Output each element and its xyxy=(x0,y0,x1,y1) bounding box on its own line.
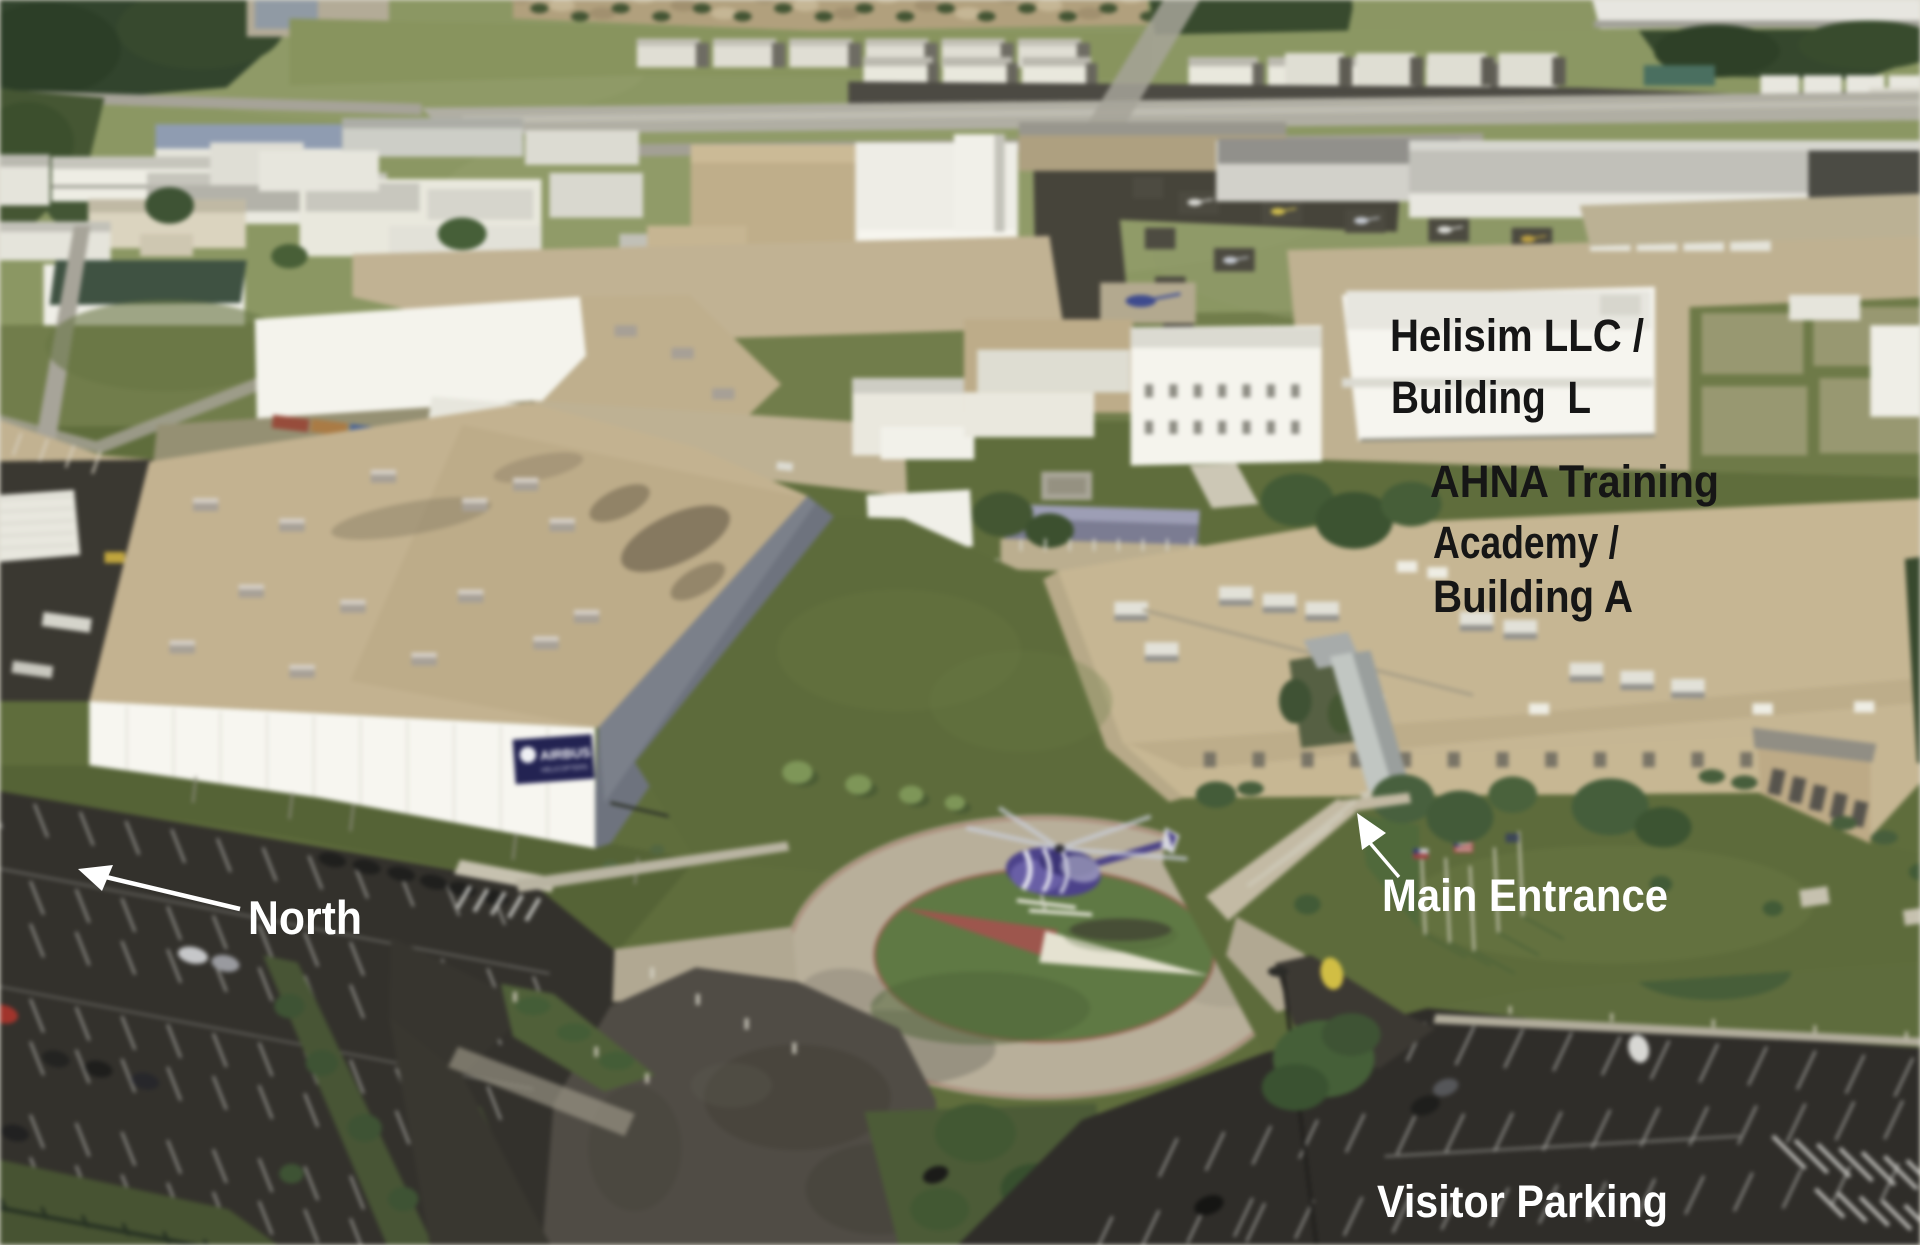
svg-text:Building L: Building L xyxy=(1391,372,1591,423)
svg-text:North: North xyxy=(248,891,362,944)
svg-text:Visitor Parking: Visitor Parking xyxy=(1377,1176,1668,1227)
svg-text:Main Entrance: Main Entrance xyxy=(1382,870,1668,921)
svg-text:AHNA Training: AHNA Training xyxy=(1430,456,1719,507)
svg-text:Academy /: Academy / xyxy=(1433,517,1619,568)
svg-text:Building A: Building A xyxy=(1433,571,1633,622)
svg-text:Helisim LLC /: Helisim LLC / xyxy=(1390,310,1644,361)
